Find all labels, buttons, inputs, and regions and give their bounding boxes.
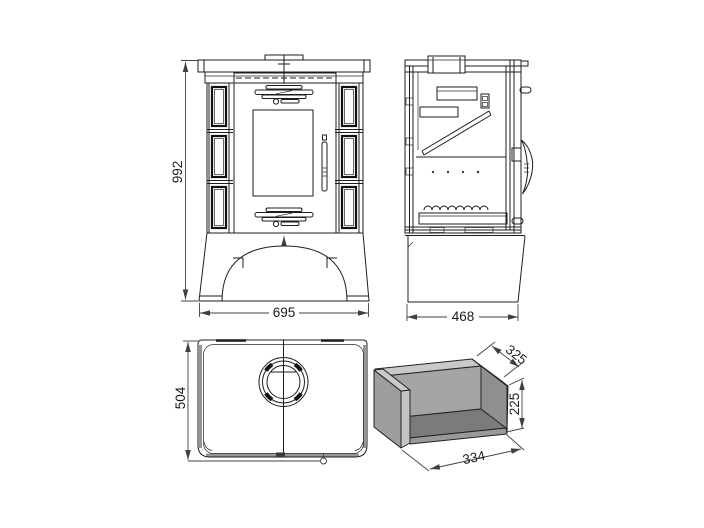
right-tile-column — [335, 83, 363, 233]
top-depth-label: 504 — [173, 386, 188, 409]
side-depth-label: 468 — [452, 309, 475, 324]
front-width-dimension: 695 — [200, 303, 369, 320]
side-base — [405, 236, 525, 303]
deflector-plate — [422, 111, 491, 155]
rear-clip — [276, 453, 285, 458]
top-depth-dimension: 504 — [173, 341, 327, 464]
top-view: 504 — [173, 340, 367, 464]
bottom-vent-rosette — [255, 208, 313, 227]
firebox-height-dimension: 225 — [507, 378, 524, 432]
grate — [424, 206, 488, 210]
tile — [212, 136, 226, 177]
tile — [212, 187, 226, 228]
firebox-height-label: 225 — [507, 393, 522, 416]
ash-pan — [419, 213, 507, 224]
tile — [212, 87, 226, 126]
upper-baffle — [437, 87, 477, 100]
top-vent-rosette — [255, 86, 313, 105]
tile — [342, 136, 356, 177]
base-arch — [222, 246, 347, 301]
front-height-dimension: 992 — [170, 61, 198, 302]
stove-door — [234, 73, 336, 233]
firebox-depth-label: 325 — [503, 342, 530, 368]
side-door-handle — [522, 140, 533, 194]
front-height-label: 992 — [170, 161, 185, 184]
flue-collar — [428, 56, 465, 73]
left-tile-column — [207, 83, 233, 233]
side-depth-dimension: 468 — [407, 304, 518, 324]
front-width-label: 695 — [273, 305, 296, 320]
tile — [342, 87, 356, 126]
door-handle — [322, 135, 327, 191]
side-view: 468 — [405, 56, 533, 324]
tile — [342, 187, 356, 228]
hinge-pin — [520, 87, 531, 93]
secondary-baffle — [420, 107, 458, 117]
handle-mount — [512, 148, 521, 161]
door-window — [253, 110, 313, 196]
drawing-svg: 992 695 — [0, 0, 704, 528]
firebox-width-label: 334 — [461, 448, 487, 467]
firebox-isometric-view: 325 225 334 — [374, 342, 530, 471]
front-view: 992 695 — [170, 55, 370, 320]
technical-drawing-canvas: 992 695 — [0, 0, 704, 528]
